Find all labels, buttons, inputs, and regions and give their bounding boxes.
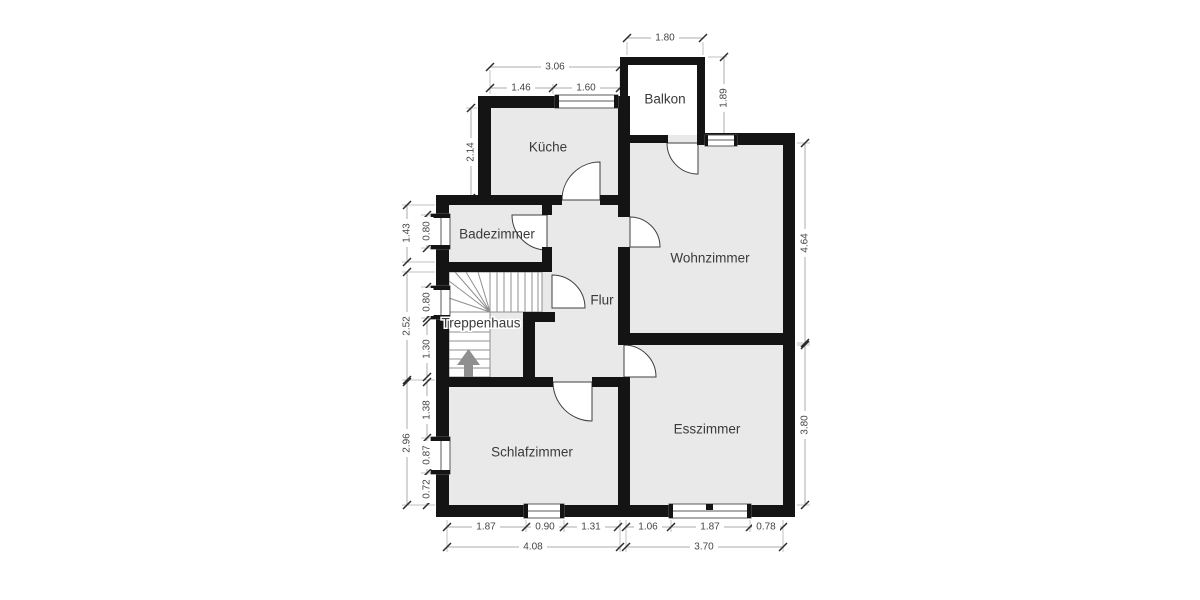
bad-flur-wall-lower (542, 247, 552, 272)
balkon-top-wall (620, 57, 705, 65)
dim-label-schlafzimmer-upper: 1.38 (422, 400, 433, 420)
balkon-right-wall (697, 57, 705, 143)
balkon-left-wall (620, 57, 628, 143)
dim-label-kueche-width-right: 1.60 (576, 83, 596, 94)
bad-bottom-wall (436, 262, 552, 272)
schlafzimmer-top-wall-left (436, 377, 553, 387)
dim-label-esszimmer-height: 3.80 (800, 415, 811, 435)
dim-label-schlafzimmer-height: 2.96 (402, 433, 413, 453)
dim-label-schlafzimmer-lower: 0.72 (422, 479, 433, 499)
center-wall-middle (618, 247, 630, 345)
dim-label-wohnzimmer-height: 4.64 (800, 233, 811, 253)
room-label-badezimmer: Badezimmer (459, 227, 535, 242)
dim-label-esszimmer-bottom-right: 0.78 (756, 522, 776, 533)
kueche-window (555, 95, 618, 108)
dim-label-esszimmer-width-total: 3.70 (694, 542, 714, 553)
schlafzimmer-bottom-window (524, 504, 564, 518)
kueche-left-wall (478, 96, 491, 205)
dim-label-balkon-width: 1.80 (655, 33, 675, 44)
room-label-esszimmer: Esszimmer (674, 422, 741, 437)
room-label-flur: Flur (590, 293, 614, 308)
dim-label-esszimmer-bottom-left: 1.06 (638, 522, 658, 533)
dim-label-treppenhaus-lower: 1.30 (422, 339, 433, 359)
dim-label-kueche-height: 2.14 (466, 142, 477, 162)
bad-flur-wall-upper (542, 195, 552, 215)
dim-label-kueche-width-left: 1.46 (511, 83, 531, 94)
center-wall-lower (618, 377, 630, 505)
right-exterior-wall (783, 133, 795, 517)
room-label-kueche: Küche (529, 140, 567, 155)
floorplan-page: 1.803.061.461.602.141.430.802.520.801.30… (0, 0, 1200, 600)
stair-corner-wall (523, 312, 555, 322)
wohnzimmer-bottom-wall (618, 333, 795, 345)
room-label-treppenhaus: Treppenhaus (441, 316, 520, 331)
esszimmer-bottom-window (669, 504, 751, 518)
wohnzimmer-top-window (705, 135, 737, 146)
room-label-wohnzimmer: Wohnzimmer (670, 251, 750, 266)
badezimmer-window (431, 214, 450, 249)
dim-label-badezimmer-window: 0.80 (422, 221, 433, 241)
balkon-bottom-wall (620, 135, 668, 143)
dim-label-esszimmer-bottom-window: 1.87 (700, 522, 720, 533)
room-label-schlafzimmer: Schlafzimmer (491, 445, 573, 460)
dim-label-balkon-height: 1.89 (719, 88, 730, 108)
dim-label-badezimmer-height: 1.43 (402, 223, 413, 243)
dim-label-schlafzimmer-bottom-left: 1.87 (476, 522, 496, 533)
understair-wall (523, 322, 535, 377)
schlafzimmer-left-window (431, 437, 450, 474)
treppenhaus-window (431, 286, 450, 319)
schlafzimmer-top-wall-right (592, 377, 630, 387)
room-label-balkon: Balkon (644, 92, 685, 107)
dim-label-schlafzimmer-bottom-right: 1.31 (581, 522, 601, 533)
dim-label-schlafzimmer-window-left: 0.87 (422, 445, 433, 465)
dim-label-treppenhaus-window: 0.80 (422, 292, 433, 312)
dim-label-schlafzimmer-bottom-window: 0.90 (535, 522, 555, 533)
dim-label-kueche-width-total: 3.06 (545, 62, 565, 73)
dim-label-treppenhaus-height: 2.52 (402, 316, 413, 336)
dim-label-schlafzimmer-width-total: 4.08 (523, 542, 543, 553)
floorplan-canvas: 1.803.061.461.602.141.430.802.520.801.30… (0, 0, 1200, 600)
stair-arrow-shaft (464, 365, 473, 379)
